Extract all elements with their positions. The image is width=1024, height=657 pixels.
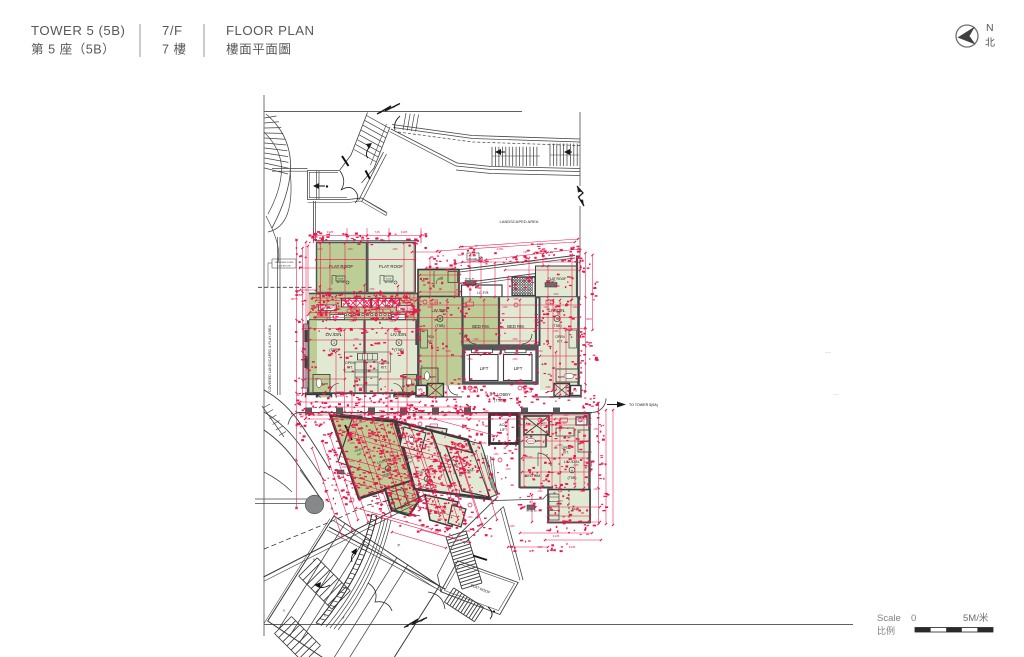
svg-text:2150: 2150	[349, 443, 355, 445]
svg-text:OPEN: OPEN	[345, 361, 356, 365]
svg-text:2150: 2150	[353, 339, 359, 341]
svg-text:2150: 2150	[481, 443, 487, 445]
svg-text:3345: 3345	[569, 545, 576, 549]
svg-text:(T5B): (T5B)	[435, 324, 445, 328]
svg-text:BATH: BATH	[430, 376, 436, 379]
svg-text:2150: 2150	[327, 289, 333, 291]
svg-text:比例: 比例	[877, 625, 895, 636]
svg-text:2150: 2150	[357, 439, 363, 441]
svg-text:2150: 2150	[425, 447, 431, 449]
svg-text:2150: 2150	[455, 294, 461, 296]
svg-text:2150: 2150	[561, 423, 567, 425]
svg-text:2150: 2150	[427, 307, 433, 309]
svg-text:75 kW: 75 kW	[338, 279, 344, 281]
svg-text:2150: 2150	[467, 359, 473, 361]
svg-text:2150: 2150	[445, 467, 451, 469]
svg-text:LIV./DIN.: LIV./DIN.	[325, 332, 342, 337]
svg-text:2150: 2150	[537, 351, 543, 353]
svg-text:2150: 2150	[392, 249, 398, 251]
svg-text:2150: 2150	[513, 299, 519, 301]
svg-text:2150: 2150	[417, 475, 423, 477]
svg-text:FLAT ROOF: FLAT ROOF	[379, 264, 404, 269]
svg-text:2150: 2150	[512, 339, 518, 341]
svg-text:2150: 2150	[502, 307, 508, 309]
svg-text:BATH: BATH	[558, 376, 564, 379]
svg-text:P.: P.	[397, 544, 400, 548]
svg-text:2150: 2150	[417, 389, 423, 391]
svg-text:2150: 2150	[557, 501, 563, 503]
svg-text:75 kW: 75 kW	[470, 256, 476, 258]
svg-text:2150: 2150	[563, 415, 569, 417]
svg-text:2150: 2150	[335, 309, 341, 311]
svg-text:BATH: BATH	[535, 440, 541, 443]
svg-text:2150: 2150	[442, 415, 448, 417]
svg-text:OPEN: OPEN	[555, 335, 565, 339]
svg-text:2150: 2150	[521, 419, 527, 421]
svg-text:2150: 2150	[417, 301, 423, 303]
svg-text:2150: 2150	[579, 491, 585, 493]
svg-text:2150: 2150	[349, 307, 355, 309]
svg-text:3425: 3425	[327, 230, 334, 234]
svg-text:2150: 2150	[497, 247, 504, 251]
svg-text:TO TOWER 5(5A): TO TOWER 5(5A)	[629, 403, 658, 407]
svg-text:TOWER 5 (5B): TOWER 5 (5B)	[31, 23, 125, 38]
svg-text:2150: 2150	[572, 307, 578, 309]
svg-text:(T5B): (T5B)	[552, 324, 562, 328]
svg-text:2150: 2150	[347, 249, 353, 251]
svg-text:2150: 2150	[553, 331, 559, 333]
svg-text:2150: 2150	[415, 501, 421, 503]
svg-text:2150: 2150	[417, 329, 423, 331]
svg-text:2150: 2150	[373, 423, 379, 425]
svg-text:2150: 2150	[553, 294, 559, 296]
svg-text:2150: 2150	[441, 509, 447, 511]
svg-text:5M/米: 5M/米	[963, 612, 989, 624]
svg-text:2150: 2150	[465, 531, 471, 533]
svg-text:7/F: 7/F	[162, 23, 183, 38]
svg-text:2150: 2150	[527, 457, 533, 459]
svg-text:2150: 2150	[493, 454, 499, 456]
svg-text:2150: 2150	[593, 489, 599, 491]
svg-text:2150: 2150	[327, 355, 333, 357]
svg-text:2150: 2150	[349, 321, 355, 323]
svg-text:A/C UNIT: A/C UNIT	[385, 281, 394, 284]
svg-text:2150: 2150	[505, 469, 511, 471]
svg-text:2150: 2150	[333, 419, 339, 421]
svg-text:2150: 2150	[467, 491, 473, 493]
svg-text:2150: 2150	[327, 387, 333, 389]
svg-text:2150: 2150	[445, 351, 451, 353]
svg-text:A/C UNIT: A/C UNIT	[337, 281, 346, 284]
svg-text:2150: 2150	[557, 445, 563, 447]
svg-text:2150: 2150	[473, 339, 479, 341]
svg-text:2150: 2150	[395, 329, 401, 331]
svg-text:2150: 2150	[369, 289, 375, 291]
svg-text:第 5 座（5B）: 第 5 座（5B）	[31, 43, 115, 57]
svg-text:2150: 2150	[357, 415, 363, 417]
svg-text:LIV./DIN.: LIV./DIN.	[431, 308, 448, 313]
svg-text:9925: 9925	[586, 317, 592, 321]
svg-text:2150: 2150	[483, 411, 489, 413]
svg-text:2150: 2150	[377, 479, 383, 481]
svg-text:2150: 2150	[387, 493, 393, 495]
svg-text:2150: 2150	[319, 305, 325, 307]
svg-text:2150: 2150	[549, 397, 555, 399]
svg-text:2150: 2150	[537, 491, 543, 493]
svg-text:2150: 2150	[357, 399, 363, 401]
svg-text:—: —	[825, 350, 831, 356]
svg-text:2150: 2150	[371, 309, 377, 311]
svg-text:2150: 2150	[449, 435, 455, 437]
svg-text:U.P.: U.P.	[439, 277, 444, 281]
svg-text:樓面平面圖: 樓面平面圖	[226, 43, 291, 57]
svg-text:N: N	[986, 22, 994, 34]
svg-text:KIT.: KIT.	[381, 366, 387, 370]
svg-text:LANDSCAPED AREA: LANDSCAPED AREA	[500, 219, 539, 224]
svg-text:2150: 2150	[387, 307, 393, 309]
svg-text:2150: 2150	[545, 387, 551, 389]
svg-text:3050: 3050	[537, 242, 544, 246]
svg-text:2150: 2150	[543, 307, 549, 309]
svg-text:LIFT: LIFT	[480, 366, 489, 371]
svg-text:2150: 2150	[317, 249, 323, 251]
svg-text:2150: 2150	[509, 526, 515, 528]
svg-text:2150: 2150	[433, 461, 439, 463]
svg-text:2150: 2150	[407, 305, 413, 307]
svg-text:7 樓: 7 樓	[162, 43, 187, 57]
svg-text:2150: 2150	[461, 469, 467, 471]
svg-text:2145: 2145	[553, 534, 560, 538]
svg-text:2150: 2150	[413, 427, 419, 429]
svg-text:LIV./DIN.: LIV./DIN.	[390, 332, 407, 337]
svg-text:2150: 2150	[467, 517, 473, 519]
svg-text:745: 745	[374, 230, 379, 234]
svg-text:2150: 2150	[537, 547, 543, 549]
svg-text:I.C.F.R.: I.C.F.R.	[477, 291, 490, 295]
svg-text:COVERED LANDSCAPED & PLAY: COVERED LANDSCAPED & PLAY AREA	[268, 324, 272, 392]
svg-text:J: J	[333, 341, 335, 345]
svg-text:LIFT: LIFT	[500, 428, 508, 432]
svg-text:2150: 2150	[361, 485, 367, 487]
svg-text:2150: 2150	[512, 359, 518, 361]
svg-text:2150: 2150	[369, 451, 375, 453]
svg-text:2150: 2150	[427, 397, 433, 399]
svg-text:LIFT: LIFT	[514, 366, 523, 371]
svg-text:2150: 2150	[467, 387, 473, 389]
svg-text:2150: 2150	[463, 307, 469, 309]
svg-text:FLOOR PLAN: FLOOR PLAN	[226, 23, 315, 38]
svg-text:(T5B): (T5B)	[394, 348, 404, 352]
svg-text:北: 北	[985, 37, 995, 49]
svg-text:Scale: Scale	[877, 613, 901, 624]
svg-text:2150: 2150	[389, 321, 395, 323]
svg-text:TRANSFER PLATE: TRANSFER PLATE	[274, 261, 294, 264]
svg-text:2150: 2150	[541, 423, 547, 425]
svg-text:2150: 2150	[593, 429, 599, 431]
svg-text:2150: 2150	[359, 329, 365, 331]
svg-text:2150: 2150	[317, 415, 323, 417]
svg-text:LINE BELOW: LINE BELOW	[277, 266, 291, 268]
svg-text:0: 0	[911, 613, 916, 624]
svg-text:75 kW: 75 kW	[386, 279, 392, 281]
svg-text:2150: 2150	[401, 455, 407, 457]
svg-text:2150: 2150	[341, 467, 347, 469]
svg-text:—: —	[833, 392, 839, 398]
svg-text:6155: 6155	[349, 459, 355, 463]
svg-text:2150: 2150	[397, 415, 403, 417]
svg-text:2150: 2150	[387, 444, 393, 446]
svg-text:KIT.: KIT.	[563, 451, 569, 455]
svg-text:2150: 2150	[573, 465, 579, 467]
svg-text:3425: 3425	[401, 230, 408, 234]
svg-text:2150: 2150	[437, 519, 443, 521]
svg-text:18075: 18075	[290, 297, 298, 301]
